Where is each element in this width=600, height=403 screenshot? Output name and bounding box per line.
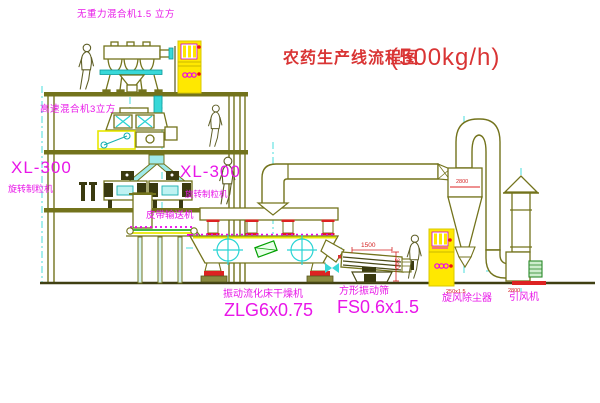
dim-screen-length: 1500	[361, 243, 375, 250]
label-granulator-left-model: XL-300	[11, 159, 72, 176]
dim-screen-drop: 340	[393, 258, 400, 269]
control-cabinet-right	[429, 229, 454, 286]
diagram-title-capacity: (500kg/h)	[390, 46, 500, 70]
fluid-bed-dryer	[190, 208, 346, 282]
person-ground	[407, 235, 421, 278]
note-stack: 2800	[508, 289, 520, 295]
label-granulator-center-model: XL-300	[180, 163, 241, 180]
label-high-speed-mixer: 高速混合机3立方	[40, 105, 116, 115]
cyclone-dust-collector	[448, 119, 500, 267]
label-fan: 引风机	[509, 293, 539, 303]
note-cyclone-outlet: 250x1.5	[446, 290, 466, 296]
label-granulator-center-name: 旋转制粒机	[185, 190, 228, 199]
flow-diagram-canvas: 无重力混合机1.5 立方 农药生产线流程图 (500kg/h) 高速混合机3立方…	[0, 0, 600, 403]
person-top-floor	[79, 44, 94, 89]
dim-cyclone: 2800	[456, 180, 468, 186]
gravity-free-mixer	[100, 42, 175, 93]
exhaust-stack	[503, 176, 539, 252]
dryer-springs	[207, 220, 335, 236]
dryer-feet	[201, 263, 333, 282]
label-dryer-model: ZLG6x0.75	[224, 301, 313, 319]
label-granulator-left-name: 旋转制粒机	[8, 185, 53, 194]
label-cyclone: 旋风除尘器	[442, 294, 492, 304]
vibrating-screen	[341, 247, 414, 282]
label-screen-name: 方形振动筛	[339, 287, 389, 297]
label-screen-model: FS0.6x1.5	[337, 298, 419, 316]
control-cabinet-top	[178, 41, 201, 93]
label-belt-conveyor: 皮带输送机	[146, 211, 194, 221]
label-top-mixer: 无重力混合机1.5 立方	[77, 10, 175, 20]
person-second-floor	[208, 105, 222, 147]
label-dryer-name: 振动流化床干燥机	[223, 290, 303, 300]
induced-draft-fan	[506, 252, 546, 285]
granulator-aux	[79, 182, 97, 201]
